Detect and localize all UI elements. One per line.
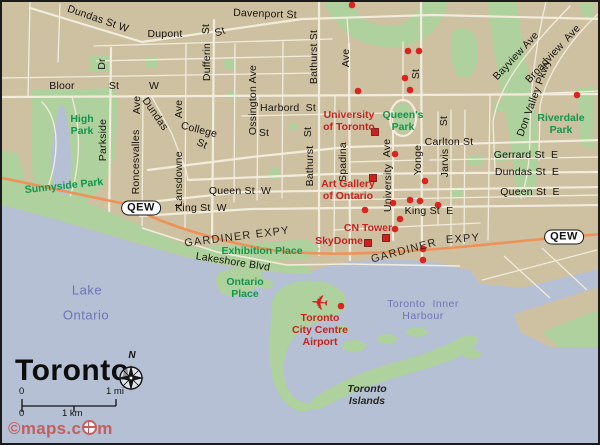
scale-bar: 0 1 mi 0 1 km	[18, 386, 128, 422]
poi-dot	[574, 92, 581, 99]
globe-icon	[82, 420, 97, 435]
poi-square-marker	[383, 235, 390, 242]
poi-dot	[355, 88, 362, 95]
poi-dot	[417, 198, 424, 205]
poi-dot	[416, 48, 423, 55]
poi-dot	[435, 202, 442, 209]
poi-square-marker	[372, 129, 379, 136]
poi-dot	[390, 200, 397, 207]
poi-dot	[402, 75, 409, 82]
logo-text-left: ©maps.c	[8, 419, 81, 438]
poi-dot	[349, 2, 356, 8]
poi-dot	[392, 151, 399, 158]
logo-text-right: m	[97, 419, 112, 438]
poi-dot	[420, 246, 427, 253]
poi-dot	[392, 226, 399, 233]
compass-north-label: N	[128, 350, 135, 361]
poi-dot	[422, 178, 429, 185]
poi-dot	[407, 197, 414, 204]
queens-park-green	[393, 103, 413, 133]
airplane-icon: ✈	[310, 290, 330, 316]
map-title: Toronto	[15, 354, 130, 388]
qew-route-badge: QEW	[544, 230, 584, 245]
poi-dot	[338, 303, 345, 310]
poi-dot	[420, 257, 427, 264]
qew-route-badge: QEW	[121, 201, 161, 216]
poi-dot	[407, 87, 414, 94]
poi-dot	[362, 207, 369, 214]
scale-km-start: 0	[19, 408, 24, 419]
poi-square-marker	[370, 175, 377, 182]
maps-com-logo: ©maps.cm	[8, 419, 113, 439]
scale-km-end: 1 km	[62, 408, 83, 419]
poi-dot	[397, 216, 404, 223]
toronto-map: ✈ Dundas St WDavenport StDupontStDufferi…	[0, 0, 600, 445]
poi-square-marker	[365, 240, 372, 247]
poi-dot	[405, 48, 412, 55]
